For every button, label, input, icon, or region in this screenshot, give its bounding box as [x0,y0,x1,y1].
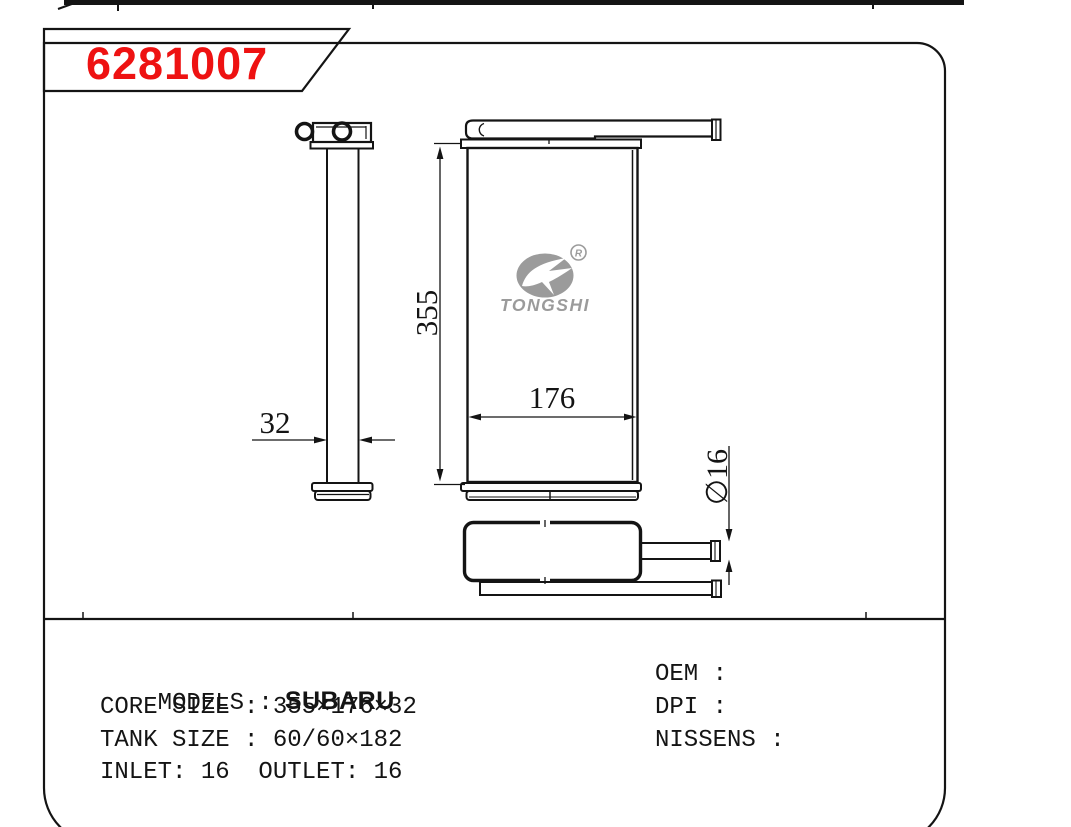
spec-dpi: DPI : [655,695,727,721]
side-view [297,123,374,500]
bottom-view [465,519,722,597]
dimension-width-176: 176 [469,380,637,420]
spec-core-size: CORE SIZE : 355×176×32 [100,695,417,721]
spec-oem: OEM : [655,662,727,688]
dim-depth-label: 32 [260,405,291,440]
spec-inlet-outlet: INLET: 16 OUTLET: 16 [100,760,402,786]
brand-logo: R TONGSHI [500,245,590,315]
dimension-height-355: 355 [409,144,465,485]
dimension-depth-32: 32 [252,405,395,443]
spec-tank-size: TANK SIZE : 60/60×182 [100,728,402,754]
dim-pipe-label: ∅16 [701,449,734,505]
dimension-pipe-diameter-16: ∅16 [701,446,734,585]
side-pipe-left [297,124,313,140]
spec-nissens: NISSENS : [655,728,785,754]
dim-width-label: 176 [529,380,576,415]
part-number: 6281007 [86,38,268,89]
top-frame-remnant [58,0,964,11]
dim-height-label: 355 [409,290,444,337]
catalog-page: { "title": { "part_number": "6281007" },… [0,0,1071,827]
core-body [468,148,638,482]
part-number-box: 6281007 [44,29,349,91]
side-pipe-right [334,123,351,140]
logo-brand-text: TONGSHI [500,295,590,315]
tank-outline [465,523,641,581]
registered-trademark-letter: R [575,249,583,260]
spec-divider [45,612,944,619]
